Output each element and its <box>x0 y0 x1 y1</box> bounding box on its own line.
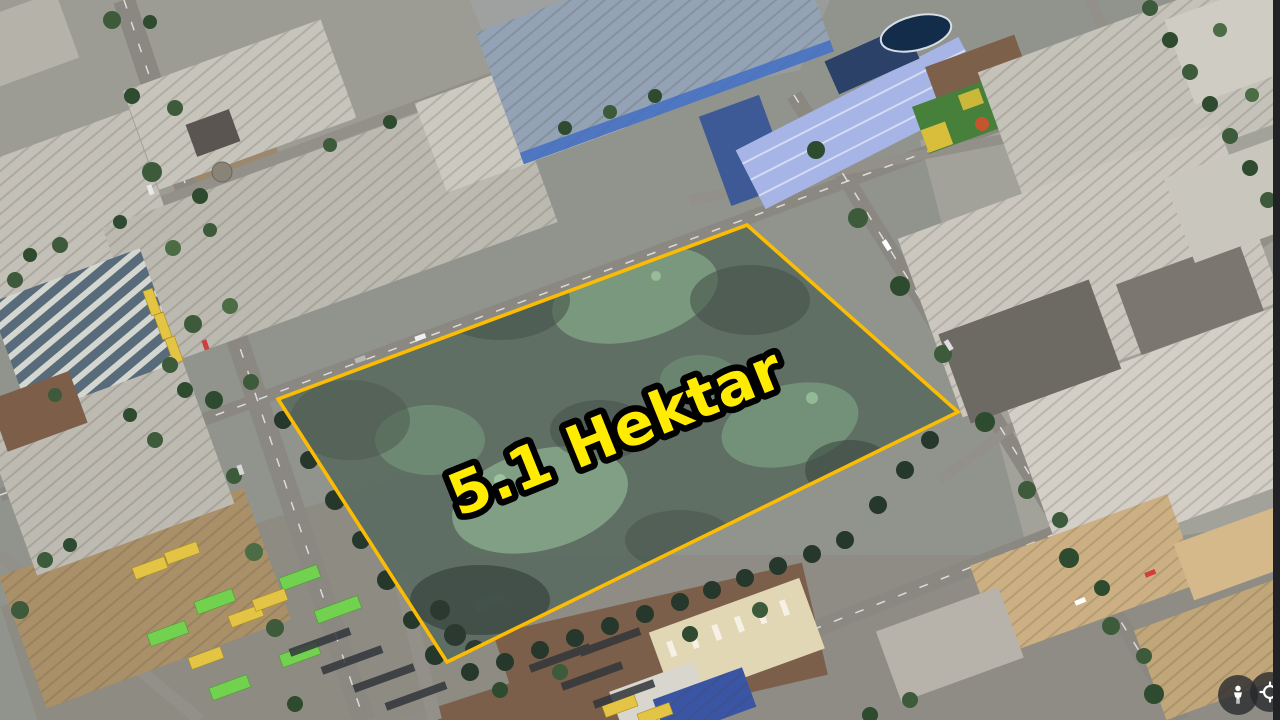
side-panel-edge <box>1273 0 1280 720</box>
map-viewport[interactable]: 5.1 Hektar <box>0 0 1280 720</box>
pegman-button[interactable] <box>1218 675 1258 715</box>
pegman-icon <box>1227 684 1249 706</box>
satellite-scene: 5.1 Hektar <box>0 0 1280 720</box>
